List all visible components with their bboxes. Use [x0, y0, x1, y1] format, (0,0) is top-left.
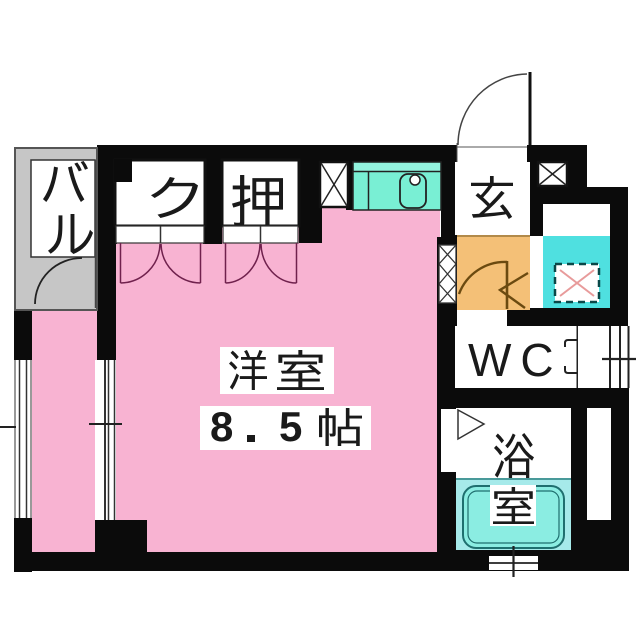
- svg-text:WC: WC: [468, 334, 563, 386]
- svg-text:5: 5: [279, 403, 302, 450]
- svg-text:8: 8: [210, 403, 233, 450]
